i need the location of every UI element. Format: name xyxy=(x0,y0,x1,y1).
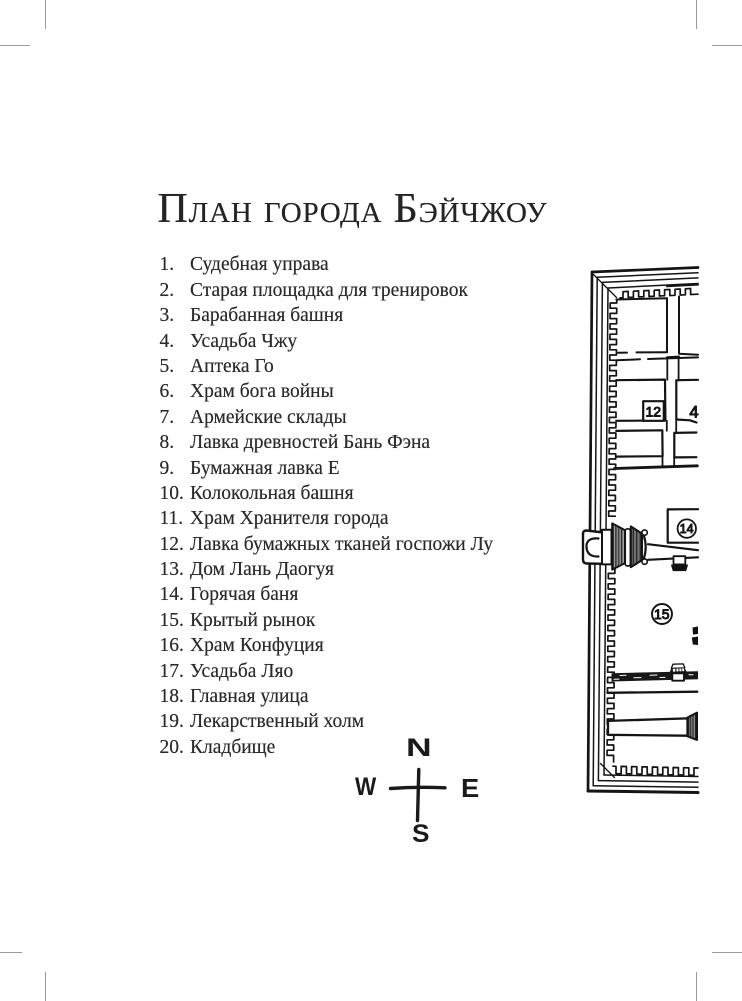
svg-text:12: 12 xyxy=(646,404,662,420)
svg-text:14: 14 xyxy=(680,522,694,536)
svg-text:15: 15 xyxy=(654,606,670,622)
svg-text:4: 4 xyxy=(689,404,698,422)
